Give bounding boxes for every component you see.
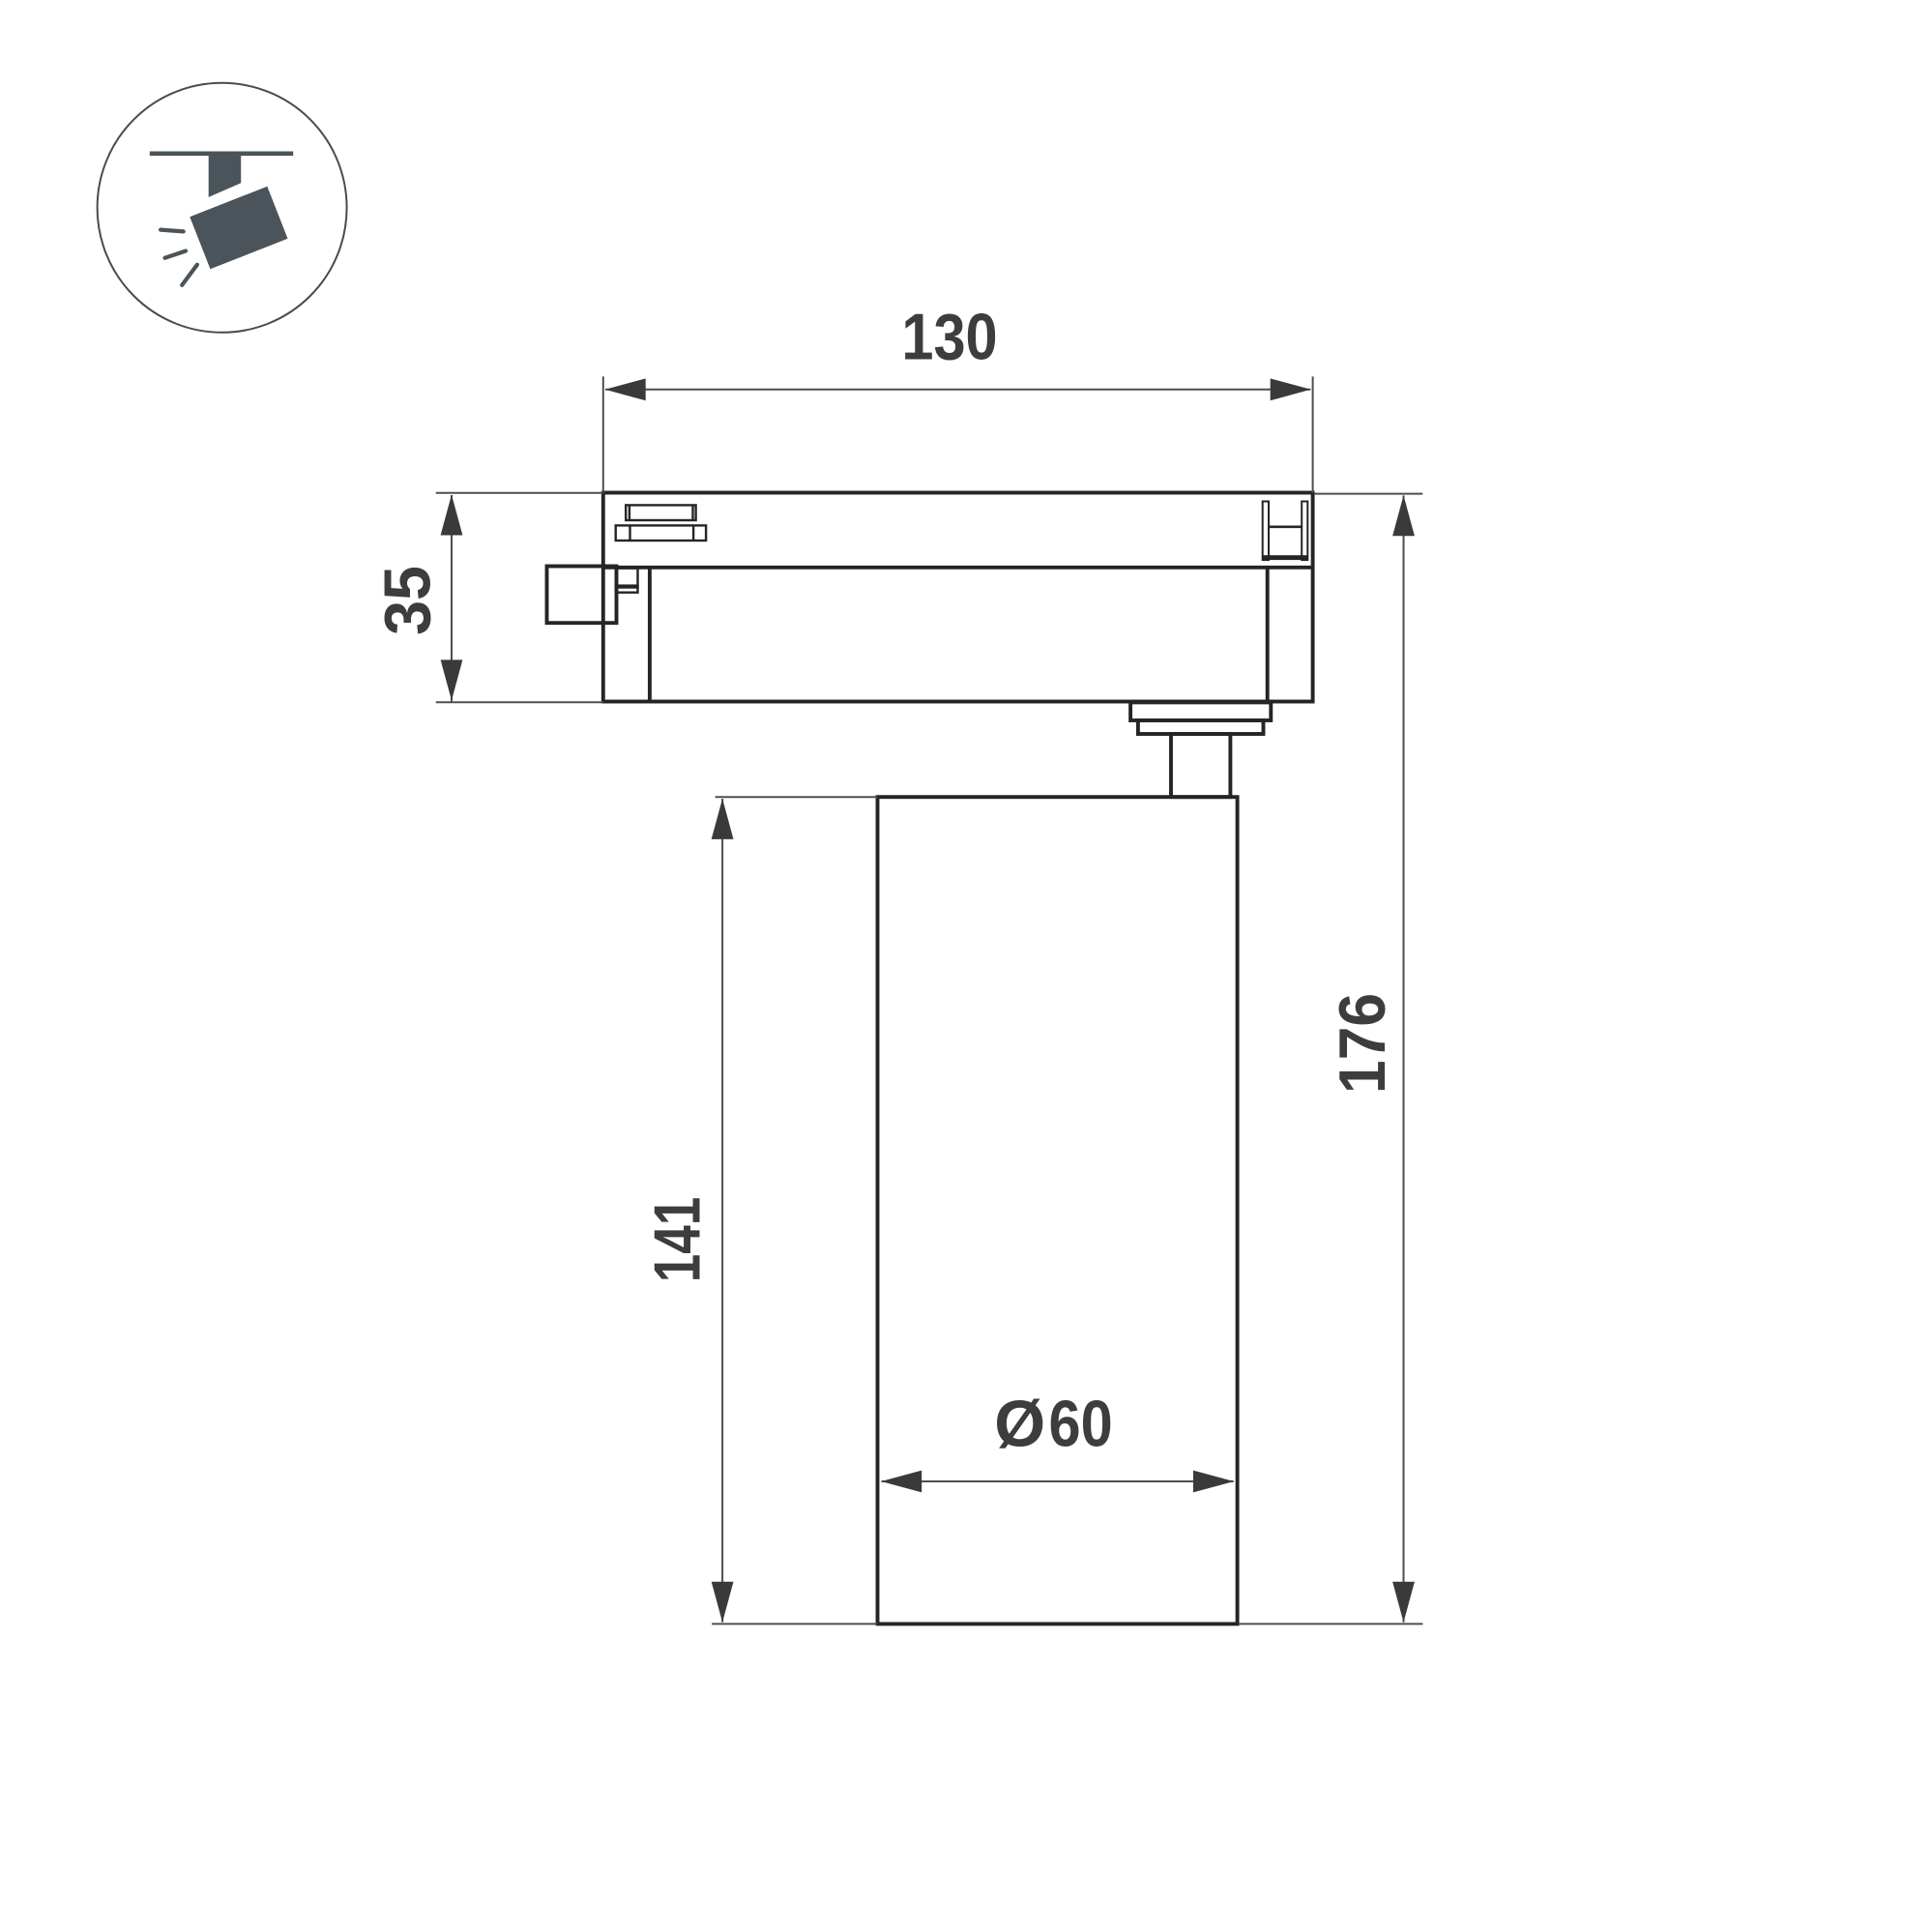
svg-text:130: 130	[901, 300, 997, 374]
svg-text:60: 60	[1049, 1387, 1113, 1461]
svg-text:176: 176	[1326, 993, 1399, 1094]
svg-text:Ø: Ø	[994, 1388, 1045, 1461]
svg-text:35: 35	[371, 566, 445, 635]
svg-text:141: 141	[640, 1197, 714, 1282]
